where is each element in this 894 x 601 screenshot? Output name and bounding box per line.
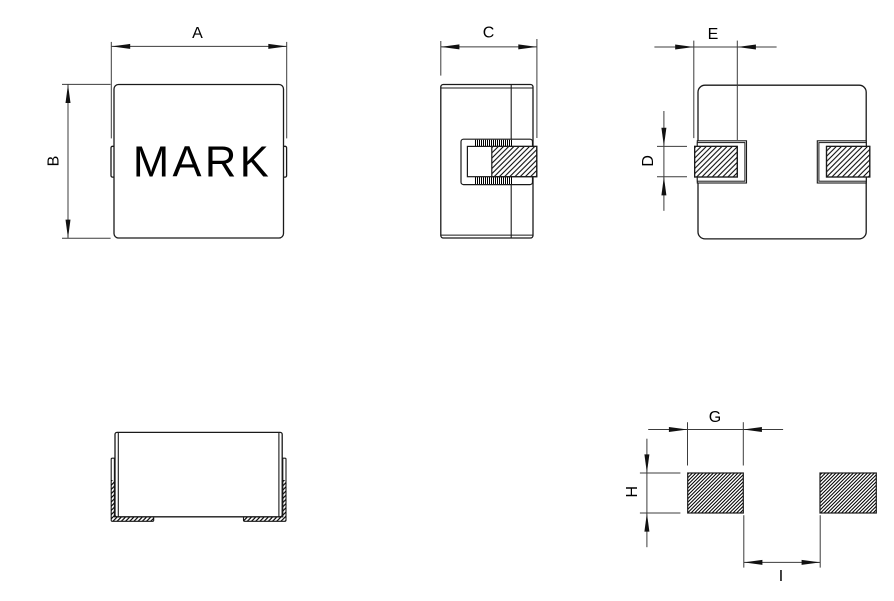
svg-text:H: H xyxy=(624,486,641,498)
svg-text:B: B xyxy=(45,156,62,167)
svg-text:D: D xyxy=(640,155,657,167)
svg-text:E: E xyxy=(708,26,719,43)
svg-text:C: C xyxy=(483,25,495,42)
svg-text:MARK: MARK xyxy=(133,139,272,187)
svg-text:A: A xyxy=(192,25,203,42)
svg-text:I: I xyxy=(779,568,783,585)
svg-text:G: G xyxy=(709,409,721,426)
